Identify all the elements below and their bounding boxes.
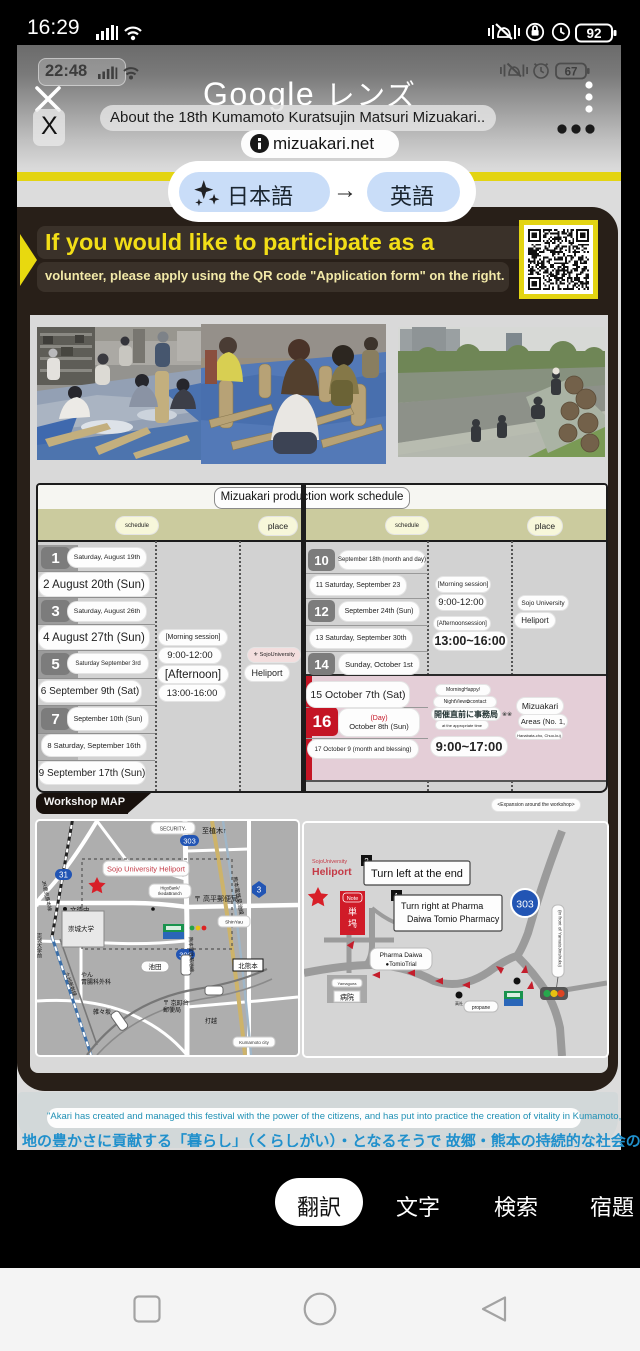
svg-text:303: 303 — [183, 837, 196, 846]
svg-text:雑々坂: 雑々坂 — [93, 1008, 111, 1016]
svg-text:HigoBank/: HigoBank/ — [160, 886, 180, 891]
svg-text:崇城大学前: 崇城大学前 — [36, 932, 42, 959]
svg-text:病院: 病院 — [340, 993, 354, 1002]
svg-text:熊本電鉄菊池線: 熊本電鉄菊池線 — [187, 937, 195, 972]
svg-text:打越: 打越 — [205, 1017, 217, 1025]
svg-text:303: 303 — [516, 899, 534, 911]
svg-text:Note: Note — [347, 896, 359, 902]
svg-text:Turn right at Pharma: Turn right at Pharma — [401, 901, 483, 911]
svg-text:IkedaBranch: IkedaBranch — [158, 891, 182, 896]
svg-text:(in front of YamatoJinshuku): (in front of YamatoJinshuku) — [558, 910, 563, 967]
svg-text:Pharma Daiwa: Pharma Daiwa — [380, 952, 423, 959]
svg-text:SECURITY-: SECURITY- — [160, 827, 187, 833]
svg-text:〒 高平郵便局: 〒 高平郵便局 — [194, 894, 238, 903]
svg-text:Daiwa Tomio Pharmacy: Daiwa Tomio Pharmacy — [407, 914, 500, 924]
svg-text:Heliport: Heliport — [312, 866, 352, 878]
svg-text:3: 3 — [257, 886, 262, 895]
svg-text:単: 単 — [348, 906, 357, 917]
svg-text:Turn left at the end: Turn left at the end — [371, 868, 463, 880]
svg-text:池田: 池田 — [149, 962, 162, 971]
svg-text:崇城大学: 崇城大学 — [68, 924, 95, 933]
svg-text:Sojo University Heliport: Sojo University Heliport — [107, 865, 186, 874]
svg-text:郵便局: 郵便局 — [163, 1006, 181, 1014]
svg-text:31: 31 — [59, 871, 68, 880]
svg-text:propane: propane — [472, 1005, 491, 1011]
svg-text:北熊本: 北熊本 — [238, 961, 258, 970]
svg-text:至植木↑: 至植木↑ — [202, 826, 227, 835]
svg-text:胃腸科外科: 胃腸科外科 — [81, 978, 111, 986]
svg-text:やん: やん — [81, 971, 93, 979]
svg-text:ShinYau: ShinYau — [225, 920, 243, 926]
svg-text:Yamaguea: Yamaguea — [337, 981, 357, 986]
svg-text:〒 京町台: 〒 京町台 — [163, 999, 189, 1007]
svg-text:●TomioTrial: ●TomioTrial — [385, 962, 416, 968]
svg-text:67: 67 — [565, 66, 578, 78]
svg-text:高社: 高社 — [455, 1000, 463, 1006]
svg-text:92: 92 — [586, 26, 601, 41]
svg-text:Kumamoto city: Kumamoto city — [239, 1040, 270, 1045]
svg-text:SojoUniversity: SojoUniversity — [312, 859, 347, 865]
